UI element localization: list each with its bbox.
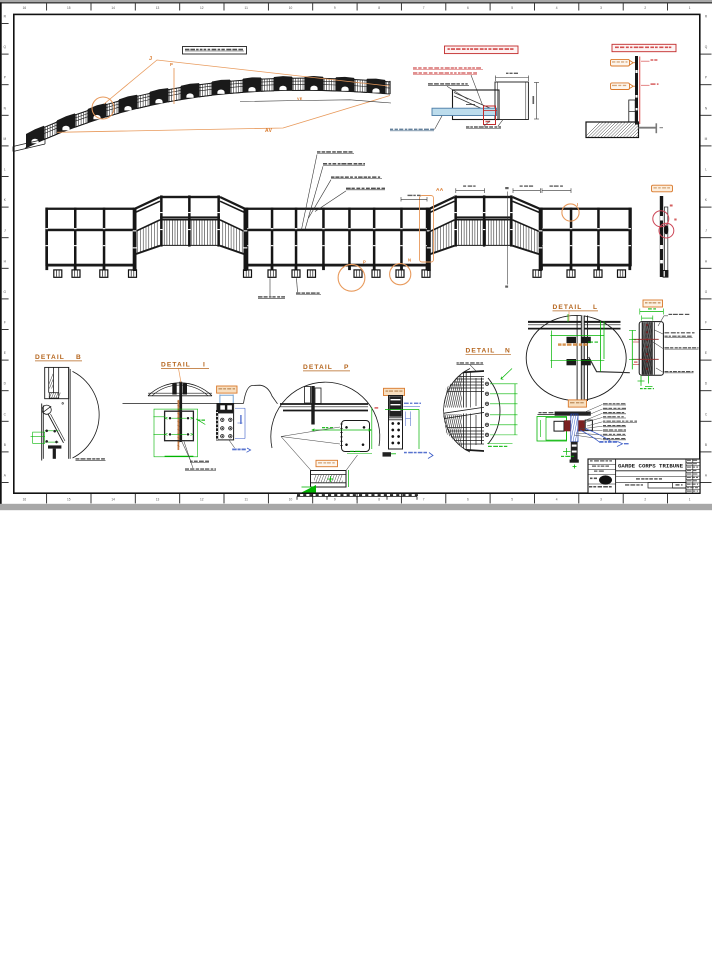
svg-text:9: 9 (334, 6, 336, 10)
svg-text:8: 8 (378, 6, 380, 10)
svg-text:3: 3 (600, 498, 602, 502)
svg-text:F: F (705, 321, 707, 325)
svg-text:DETAIL: DETAIL (161, 362, 191, 369)
svg-text:13: 13 (156, 6, 160, 10)
svg-text:B: B (4, 443, 6, 447)
svg-text:13: 13 (156, 498, 160, 502)
svg-text:N: N (408, 258, 411, 263)
svg-text:J: J (149, 56, 152, 62)
svg-text:I: I (577, 202, 578, 207)
svg-text:4: 4 (556, 6, 558, 10)
svg-text:DETAIL: DETAIL (553, 304, 583, 311)
svg-text:GARDE CORPS TRIBUNE: GARDE CORPS TRIBUNE (618, 462, 684, 469)
svg-text:M: M (705, 137, 708, 141)
svg-text:6: 6 (467, 498, 469, 502)
svg-text:12: 12 (200, 498, 204, 502)
svg-text:M: M (3, 137, 6, 141)
svg-text:4: 4 (556, 498, 558, 502)
svg-text:14: 14 (111, 498, 115, 502)
svg-text:P: P (4, 76, 6, 80)
svg-text:L: L (593, 304, 597, 311)
svg-text:16: 16 (23, 498, 27, 502)
svg-text:7: 7 (423, 6, 425, 10)
svg-text:14: 14 (111, 6, 115, 10)
svg-text:9: 9 (334, 498, 336, 502)
svg-text:E: E (4, 351, 6, 355)
svg-text:DETAIL: DETAIL (303, 364, 333, 371)
svg-text:AA: AA (436, 187, 444, 193)
svg-text:15: 15 (67, 498, 71, 502)
svg-text:P: P (705, 76, 707, 80)
svg-text:2: 2 (644, 6, 646, 10)
svg-text:1: 1 (689, 498, 691, 502)
svg-text:5: 5 (511, 6, 513, 10)
svg-text:12: 12 (200, 6, 204, 10)
svg-text:E: E (705, 351, 707, 355)
svg-text:5: 5 (511, 498, 513, 502)
svg-text:P: P (363, 260, 366, 265)
svg-text:6: 6 (467, 6, 469, 10)
svg-text:I: I (203, 362, 205, 369)
svg-text:P: P (170, 62, 173, 67)
svg-text:8: 8 (378, 498, 380, 502)
svg-text:11: 11 (245, 498, 249, 502)
svg-text:11: 11 (245, 6, 249, 10)
svg-text:N: N (505, 347, 510, 354)
svg-text:DETAIL: DETAIL (466, 347, 496, 354)
svg-text:B: B (705, 443, 707, 447)
svg-text:10: 10 (289, 6, 293, 10)
svg-text:2: 2 (644, 498, 646, 502)
svg-text:16: 16 (23, 6, 27, 10)
svg-text:7: 7 (423, 498, 425, 502)
svg-text:10: 10 (289, 498, 293, 502)
svg-text:B: B (76, 354, 81, 361)
svg-text:AV: AV (265, 128, 273, 134)
svg-text:15: 15 (67, 6, 71, 10)
svg-text:L: L (4, 168, 6, 172)
svg-text:L: L (705, 168, 707, 172)
svg-text:DETAIL: DETAIL (35, 354, 65, 361)
svg-text:1: 1 (689, 6, 691, 10)
svg-text:P: P (344, 364, 349, 371)
svg-text:F: F (4, 321, 6, 325)
svg-text:3: 3 (600, 6, 602, 10)
